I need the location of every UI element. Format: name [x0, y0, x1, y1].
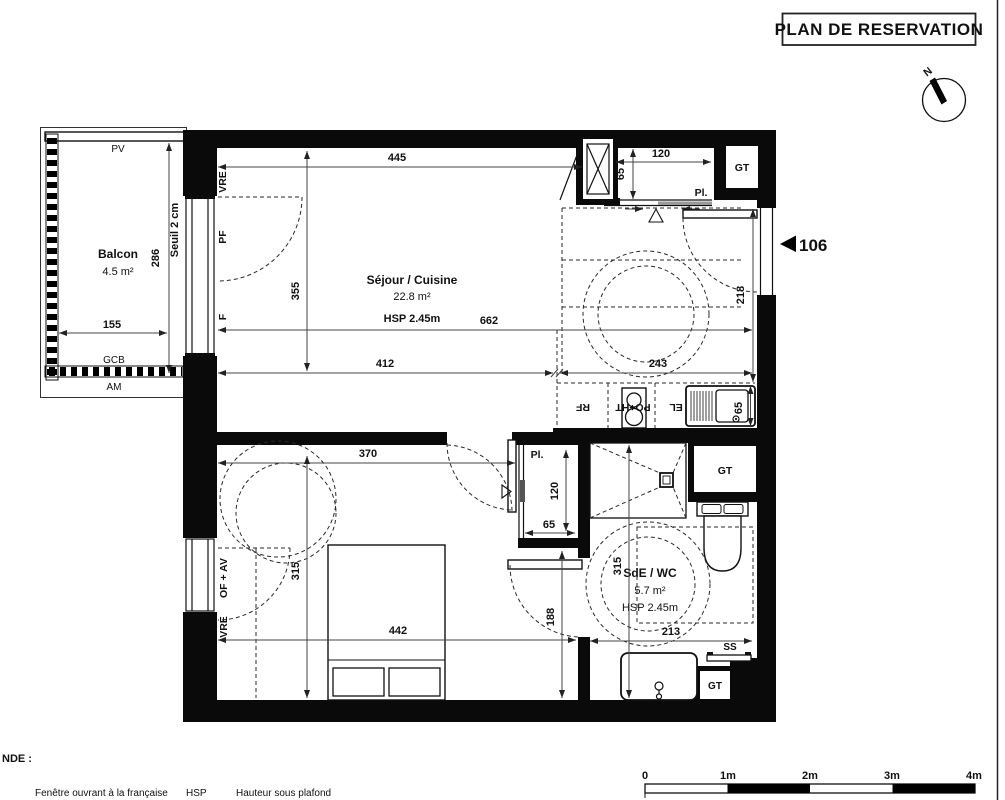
dim-entry-closet-d: 65 [615, 168, 627, 180]
entrance-door-leaf [683, 210, 757, 218]
entry-direction-marker [649, 209, 663, 222]
sde-hsp: HSP 2.45m [622, 602, 678, 614]
code-f: F [217, 313, 229, 320]
dim-sde-height: 315 [612, 557, 624, 575]
dim-closet-width: 65 [543, 519, 555, 531]
legend-heading: NDE : [2, 753, 32, 765]
gt-entry-label: GT [735, 162, 750, 174]
dim-balcony-width: 155 [103, 319, 121, 331]
dimension-lines: 445 120 65 355 662 412 243 218 370 315 4… [218, 148, 753, 698]
dim-chambre-width: 442 [389, 625, 407, 637]
chambre-room: Chambre 13.9 m² [220, 441, 445, 700]
bathroom-door-leaf [508, 560, 582, 569]
sde-area: 5.7 m² [634, 585, 666, 597]
dim-closet-height: 120 [549, 482, 561, 500]
unit-number: 106 [799, 236, 827, 255]
sejour-hsp: HSP 2.45m [384, 313, 441, 325]
legend-hsp-def: Hauteur sous plafond [236, 788, 331, 799]
balcony-name: Balcon [98, 247, 138, 261]
threshold-label: Seuil 2 cm [169, 203, 181, 258]
dim-chambre-top: 370 [359, 448, 377, 460]
dim-hall-height: 188 [545, 608, 557, 626]
floor-plan-drawing: PLAN DE RESERVATION N PV Balcon 4.5 m² 2… [0, 0, 1005, 800]
dim-entry-width: 243 [649, 358, 667, 370]
fridge-label: RF [575, 401, 590, 413]
unit-arrow-icon [780, 236, 796, 253]
sde-name: SdE / WC [623, 566, 677, 580]
compass-needle [930, 78, 948, 105]
dim-sejour-top: 445 [388, 152, 406, 164]
dim-sejour-height: 355 [290, 282, 302, 300]
legend-item-window: Fenêtre ouvrant à la française [35, 788, 168, 799]
dim-chambre-height: 315 [290, 562, 302, 580]
legend-hsp-abbr: HSP [186, 788, 207, 799]
scale-2m: 2m [802, 770, 818, 782]
code-vre-sejour: VRE [217, 171, 229, 193]
compass-icon: N [921, 65, 965, 122]
sejour-window-swing [218, 197, 302, 281]
entrance-door [649, 208, 776, 295]
dim-sejour-total-width: 662 [480, 315, 498, 327]
code-of-av: OF + AV [218, 558, 230, 598]
gt-bottom-label: GT [708, 681, 722, 692]
toilet-icon [697, 502, 748, 571]
chambre-closet: Pl. 120 65 [519, 445, 575, 538]
shower-drain-icon [660, 473, 673, 487]
scale-bar: 0 1m 2m 3m 4m [642, 770, 982, 798]
sejour-area: 22.8 m² [393, 291, 431, 303]
sejour-room: Séjour / Cuisine 22.8 m² HSP 2.45m [367, 273, 458, 325]
unit-number-marker: 106 [780, 236, 827, 256]
legend: NDE : Fenêtre ouvrant à la française HSP… [2, 753, 331, 799]
entry-closet-label: Pl. [695, 187, 708, 199]
scale-3m: 3m [884, 770, 900, 782]
scale-0: 0 [642, 770, 648, 782]
title-box: PLAN DE RESERVATION [775, 14, 984, 46]
code-am: AM [107, 382, 122, 393]
entry-hall-markings [562, 208, 742, 377]
gt-entry: GT [726, 146, 758, 188]
compass-north-label: N [921, 65, 934, 79]
dim-kitchen-depth: 65 [733, 402, 745, 414]
chambre-closet-label: Pl. [531, 449, 544, 461]
closet-door-handle [520, 480, 525, 502]
dim-entry-height: 218 [735, 286, 747, 304]
dim-entry-closet-w: 120 [652, 148, 670, 160]
balcony-railing-left [46, 134, 58, 380]
scale-4m: 4m [966, 770, 982, 782]
balcony: PV Balcon 4.5 m² 286 155 Seuil 2 cm GCB … [41, 128, 187, 398]
bed-icon [328, 545, 445, 700]
sliding-door-leaf [658, 202, 712, 206]
gt-sde-label: GT [718, 465, 733, 477]
dim-balcony-height: 286 [150, 249, 162, 267]
code-pv: PV [111, 144, 125, 155]
kitchen: RF PO+HT EL 65 [557, 330, 755, 428]
chambre-door-leaf [508, 440, 516, 512]
page-title: PLAN DE RESERVATION [775, 20, 984, 39]
entrance-door-swing [683, 218, 757, 292]
dim-sejour-left-width: 412 [376, 358, 394, 370]
code-pf: PF [217, 230, 229, 244]
el-label: EL [669, 401, 683, 413]
utility-shaft-detail [560, 139, 613, 200]
sejour-name: Séjour / Cuisine [367, 273, 458, 287]
bathroom-door-swing [510, 565, 578, 637]
floor-plan-page: PLAN DE RESERVATION N PV Balcon 4.5 m² 2… [0, 0, 1005, 800]
code-gcb: GCB [103, 355, 125, 366]
balcony-area: 4.5 m² [102, 266, 134, 278]
washbasin-icon [621, 653, 697, 700]
ss-label: SS [723, 642, 737, 653]
towel-radiator-icon [707, 652, 751, 661]
shower [590, 443, 686, 518]
scale-1m: 1m [720, 770, 736, 782]
chambre-door [447, 440, 516, 512]
dim-sde-width: 213 [662, 626, 680, 638]
sejour-window: VRE PF F [185, 171, 302, 357]
balcony-top-rail [45, 132, 185, 141]
